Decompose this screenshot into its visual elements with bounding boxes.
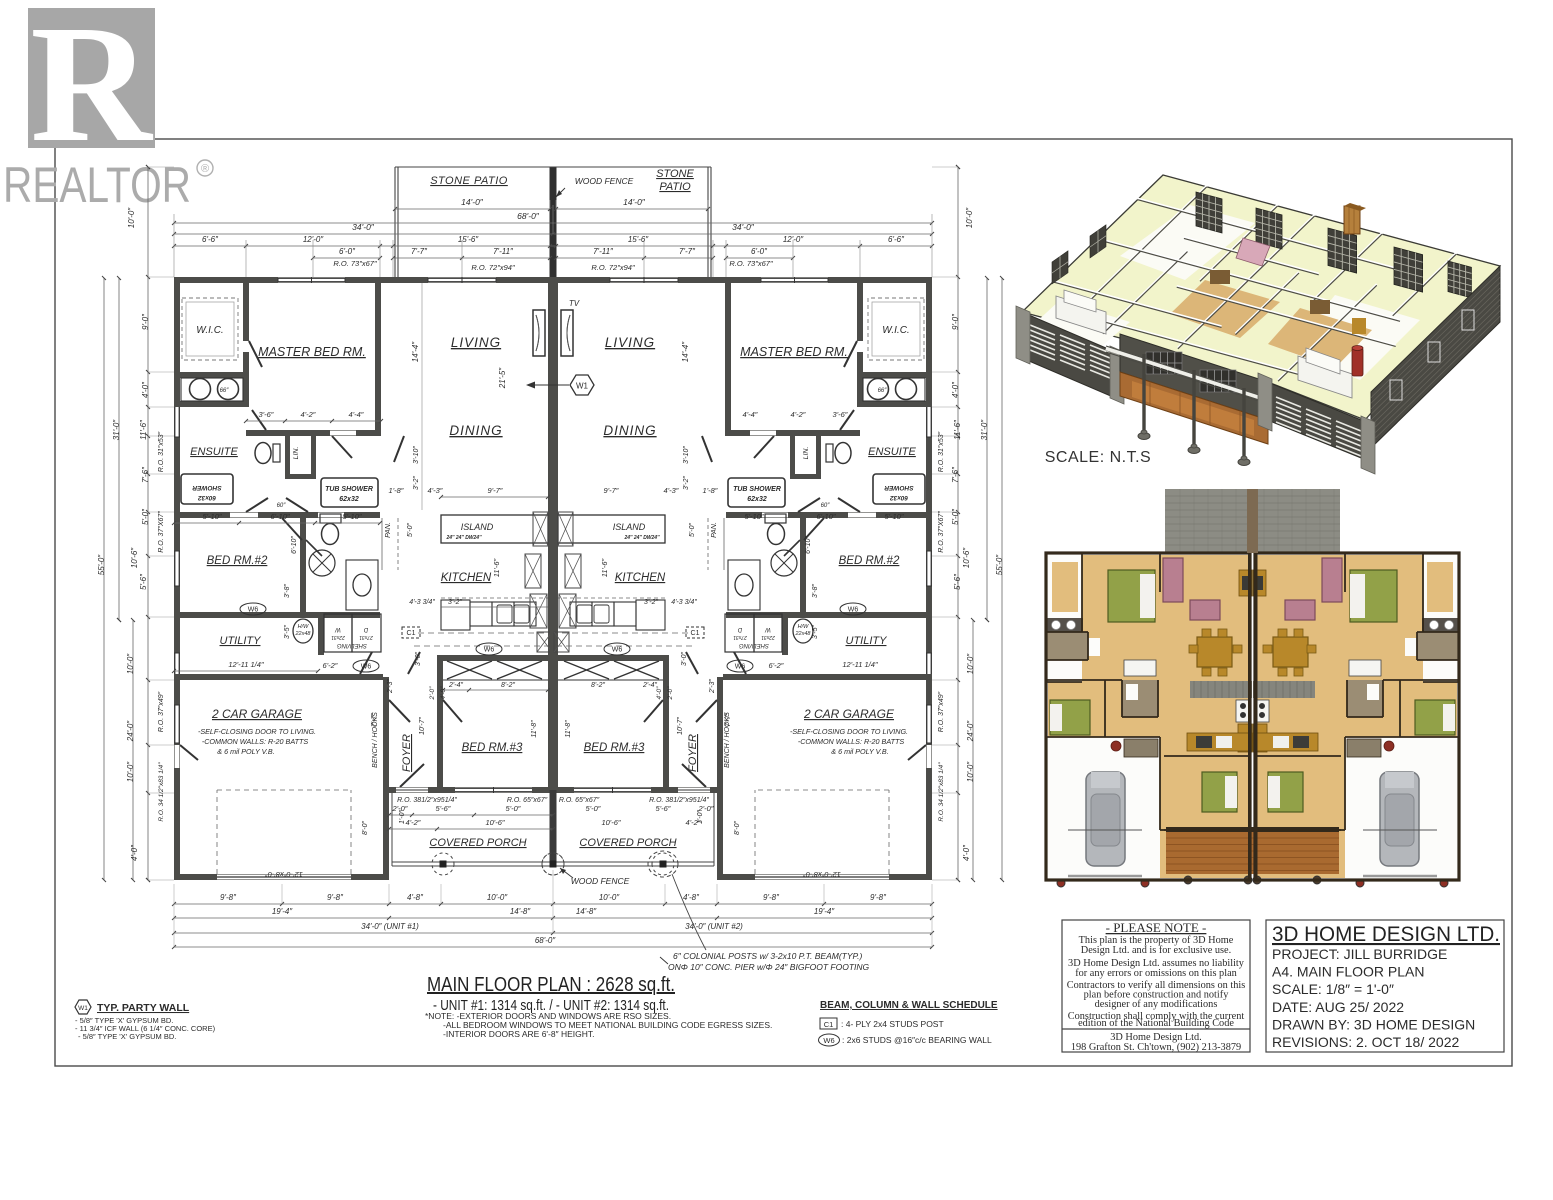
svg-text:4'-4″: 4'-4″: [743, 410, 758, 419]
svg-text:6'-6″: 6'-6″: [888, 235, 905, 244]
svg-text:6″ COLONIAL POSTS w/ 3-2x10 P.: 6″ COLONIAL POSTS w/ 3-2x10 P.T. BEAM(TY…: [673, 951, 862, 961]
svg-text:3'-6″: 3'-6″: [259, 410, 274, 419]
svg-text:4'-0″: 4'-0″: [951, 381, 960, 398]
svg-text:11'-8″: 11'-8″: [531, 720, 538, 738]
svg-text:MASTER BED RM.: MASTER BED RM.: [258, 345, 366, 359]
svg-text:5'-10″: 5'-10″: [202, 512, 221, 521]
svg-text:R.O. 37″X67″: R.O. 37″X67″: [938, 511, 945, 553]
svg-text:COVERED PORCH: COVERED PORCH: [429, 837, 526, 849]
svg-text:: 2x6 STUDS @16″c/c BEARING WA: : 2x6 STUDS @16″c/c BEARING WALL: [842, 1035, 992, 1045]
svg-text:22x31: 22x31: [331, 634, 346, 640]
svg-text:-SELF-CLOSING DOOR TO LIVING.: -SELF-CLOSING DOOR TO LIVING.: [198, 727, 316, 736]
svg-text:®: ®: [201, 163, 209, 175]
svg-text:SHOWER: SHOWER: [192, 484, 222, 491]
svg-text:62x32: 62x32: [339, 496, 359, 503]
svg-text:19'-4″: 19'-4″: [272, 907, 294, 916]
svg-text:ENSUITE: ENSUITE: [190, 446, 238, 458]
svg-text:31'-0″: 31'-0″: [980, 419, 989, 441]
svg-text:KITCHEN: KITCHEN: [441, 572, 492, 584]
svg-text:TV: TV: [569, 299, 580, 308]
svg-text:R.O. 34 1/2″x83 1/4″: R.O. 34 1/2″x83 1/4″: [938, 762, 945, 822]
svg-text:7'-11″: 7'-11″: [593, 247, 614, 256]
svg-text:D: D: [737, 626, 742, 632]
svg-text:STONE PATIO: STONE PATIO: [430, 175, 508, 187]
svg-text:4'-8″: 4'-8″: [683, 893, 700, 902]
svg-text:66″: 66″: [220, 388, 230, 394]
svg-text:19'-4″: 19'-4″: [814, 907, 836, 916]
svg-text:14'-4″: 14'-4″: [411, 341, 420, 363]
svg-text:4'-0″: 4'-0″: [962, 844, 971, 861]
svg-text:BED RM.#3: BED RM.#3: [584, 742, 645, 754]
svg-text:W6: W6: [735, 664, 746, 671]
svg-text:10'-0″: 10'-0″: [126, 653, 135, 675]
svg-text:8'-0″: 8'-0″: [734, 821, 741, 835]
svg-text:9'-8″: 9'-8″: [327, 893, 344, 902]
svg-text:24'-0″: 24'-0″: [126, 720, 135, 743]
svg-text:3'-2″: 3'-2″: [683, 476, 690, 490]
svg-text:10'-7″: 10'-7″: [419, 717, 426, 735]
svg-text:34'-0″: 34'-0″: [732, 222, 755, 232]
svg-text:5'-6″: 5'-6″: [436, 804, 451, 813]
svg-text:C1: C1: [824, 1020, 834, 1029]
svg-text:4'-3 3/4″: 4'-3 3/4″: [671, 599, 697, 606]
svg-text:R.O. 37″x49″: R.O. 37″x49″: [938, 691, 945, 732]
svg-text:D: D: [363, 626, 368, 632]
svg-text:10'-0″: 10'-0″: [966, 761, 975, 783]
svg-text:W6: W6: [612, 647, 623, 654]
svg-text:9'-8″: 9'-8″: [870, 893, 887, 902]
svg-text:1'-0″: 1'-0″: [399, 810, 406, 824]
svg-text:ENSUITE: ENSUITE: [868, 446, 916, 458]
svg-text:- 5/8″ TYPE 'X' GYPSUM BD.: - 5/8″ TYPE 'X' GYPSUM BD.: [78, 1032, 176, 1041]
svg-text:10'-0″: 10'-0″: [599, 893, 621, 902]
svg-text:9'-8″: 9'-8″: [220, 893, 237, 902]
svg-text:SHELVING: SHELVING: [337, 642, 367, 648]
svg-text:R.O. 381/2″x951/4″: R.O. 381/2″x951/4″: [649, 797, 709, 804]
svg-text:STONE: STONE: [656, 168, 694, 180]
svg-text:PAN.: PAN.: [385, 522, 392, 538]
svg-text:1'-0″: 1'-0″: [697, 810, 704, 824]
svg-text:9'-0″: 9'-0″: [951, 313, 960, 330]
svg-text:24″ 24″ DW24″: 24″ 24″ DW24″: [446, 535, 483, 541]
svg-text:PAN.: PAN.: [711, 522, 718, 538]
svg-text:3'-0″: 3'-0″: [415, 652, 422, 666]
svg-text:11'-6″: 11'-6″: [492, 558, 501, 577]
svg-text:12'-0″: 12'-0″: [783, 235, 805, 244]
svg-text:10'-0″: 10'-0″: [487, 893, 509, 902]
svg-text:REVISIONS: 2. OCT 18/ 2022: REVISIONS: 2. OCT 18/ 2022: [1272, 1034, 1459, 1050]
svg-text:3'-2″: 3'-2″: [413, 476, 420, 490]
svg-text:W6: W6: [848, 607, 859, 614]
svg-text:ISLAND: ISLAND: [613, 522, 646, 532]
svg-text:6'-10″: 6'-10″: [270, 512, 289, 521]
svg-text:W.I.C.: W.I.C.: [196, 325, 223, 336]
svg-text:4'-3 3/4″: 4'-3 3/4″: [409, 599, 435, 606]
svg-text:A4. MAIN FLOOR PLAN: A4. MAIN FLOOR PLAN: [1272, 964, 1424, 980]
svg-text:15'-6″: 15'-6″: [628, 235, 650, 244]
svg-text:BEAM, COLUMN & WALL SCHEDULE: BEAM, COLUMN & WALL SCHEDULE: [820, 1000, 998, 1011]
svg-text:W: W: [334, 626, 341, 632]
svg-text:12'-0″: 12'-0″: [303, 235, 325, 244]
svg-text:3'-2″: 3'-2″: [448, 599, 462, 606]
svg-text:ONΦ 10″ CONC. PIER w/Φ 24″ BIG: ONΦ 10″ CONC. PIER w/Φ 24″ BIGFOOT FOOTI…: [668, 962, 870, 972]
svg-text:5'-6″: 5'-6″: [656, 804, 671, 813]
svg-text:R.O. 73″x67″: R.O. 73″x67″: [333, 259, 377, 268]
svg-text:COVERED PORCH: COVERED PORCH: [579, 837, 676, 849]
svg-text:C1: C1: [691, 630, 700, 637]
svg-text:UTILITY: UTILITY: [220, 635, 262, 647]
svg-text:2'-0″: 2'-0″: [429, 686, 436, 701]
svg-text:LIN.: LIN.: [293, 447, 300, 460]
svg-text:TUB SHOWER: TUB SHOWER: [325, 486, 373, 493]
svg-text:6'-2″: 6'-2″: [769, 661, 784, 670]
svg-text:10'-0″: 10'-0″: [965, 207, 974, 229]
svg-text:3'-10″: 3'-10″: [683, 446, 690, 464]
svg-text:27x31: 27x31: [733, 634, 748, 640]
svg-text:10'-0″: 10'-0″: [126, 761, 135, 783]
svg-text:DINING: DINING: [603, 423, 656, 438]
svg-text:68'-0″: 68'-0″: [517, 211, 540, 221]
svg-text:KITCHEN: KITCHEN: [615, 572, 666, 584]
svg-text:MAIN FLOOR PLAN : 2628 sq.ft.: MAIN FLOOR PLAN : 2628 sq.ft.: [427, 974, 675, 996]
svg-text:2'-0″: 2'-0″: [667, 686, 674, 701]
svg-text:SHOWER: SHOWER: [884, 484, 914, 491]
svg-text:1'-8″: 1'-8″: [703, 486, 718, 495]
svg-text:4'-2″: 4'-2″: [301, 410, 316, 419]
svg-text:3D HOME DESIGN LTD.: 3D HOME DESIGN LTD.: [1272, 923, 1500, 946]
svg-text:R.O. 37″X67″: R.O. 37″X67″: [158, 511, 165, 553]
svg-text:TYP. PARTY WALL: TYP. PARTY WALL: [97, 1002, 190, 1014]
svg-text:55'-0″: 55'-0″: [995, 554, 1004, 576]
svg-text:27x31: 27x31: [359, 634, 374, 640]
svg-text:W1: W1: [78, 1005, 88, 1012]
svg-text:H/W: H/W: [798, 624, 810, 630]
svg-text:UTILITY: UTILITY: [846, 635, 888, 647]
svg-text:3'-8″: 3'-8″: [284, 584, 291, 598]
svg-text:-SELF-CLOSING DOOR TO LIVING.: -SELF-CLOSING DOOR TO LIVING.: [790, 727, 908, 736]
svg-text:12'-11 1/4″: 12'-11 1/4″: [228, 660, 264, 669]
svg-text:9'-0″: 9'-0″: [141, 313, 150, 330]
svg-text:- PLEASE NOTE -: - PLEASE NOTE -: [1106, 920, 1207, 935]
svg-text:R.O. 72″x94″: R.O. 72″x94″: [471, 263, 515, 272]
svg-text:10'-7″: 10'-7″: [677, 717, 684, 735]
svg-text:60x32: 60x32: [198, 494, 216, 501]
svg-text:H/W: H/W: [298, 624, 310, 630]
svg-text:& 6 mil POLY V.B.: & 6 mil POLY V.B.: [831, 747, 888, 756]
svg-text:ISLAND: ISLAND: [461, 522, 494, 532]
svg-text:5'-10″: 5'-10″: [884, 512, 903, 521]
svg-text:5'-0″: 5'-0″: [689, 523, 696, 537]
svg-text:W: W: [764, 626, 771, 632]
svg-text:Design Ltd. and is for exclusi: Design Ltd. and is for exclusive use.: [1081, 945, 1231, 956]
svg-text:24'-0″: 24'-0″: [966, 720, 975, 743]
svg-text:9'-7″: 9'-7″: [488, 486, 503, 495]
svg-text:10'-0″: 10'-0″: [127, 207, 136, 229]
svg-text:9'-7″: 9'-7″: [604, 486, 619, 495]
svg-text:2'-3″: 2'-3″: [709, 679, 716, 694]
svg-text:60″: 60″: [277, 503, 287, 509]
svg-text:4'-2″: 4'-2″: [791, 410, 806, 419]
svg-text:12'-0″x8'-0″: 12'-0″x8'-0″: [803, 870, 841, 879]
svg-text:R.O. 31″x53″: R.O. 31″x53″: [938, 431, 945, 472]
svg-text:R.O. 381/2″x951/4″: R.O. 381/2″x951/4″: [397, 797, 457, 804]
svg-text:-COMMON WALLS: R-20 BATTS: -COMMON WALLS: R-20 BATTS: [202, 737, 309, 746]
svg-text:R.O. 37″x49″: R.O. 37″x49″: [158, 691, 165, 732]
svg-text:4'-3″: 4'-3″: [664, 486, 679, 495]
svg-text:3'-10″: 3'-10″: [413, 446, 420, 464]
svg-text:5'-10″: 5'-10″: [342, 512, 361, 521]
svg-text:REALTOR: REALTOR: [3, 157, 191, 213]
svg-text:24″ 24″ DW24″: 24″ 24″ DW24″: [624, 535, 661, 541]
svg-text:R: R: [30, 0, 153, 177]
svg-text:3'-0″: 3'-0″: [681, 652, 688, 666]
svg-text:10'-0″: 10'-0″: [966, 653, 975, 675]
svg-text:W6: W6: [248, 607, 259, 614]
svg-text:& 6 mil POLY V.B.: & 6 mil POLY V.B.: [217, 747, 274, 756]
svg-text:11'-6″: 11'-6″: [953, 419, 962, 440]
svg-text:34'-0″: 34'-0″: [352, 222, 375, 232]
svg-text:R.O. 65″x67″: R.O. 65″x67″: [559, 797, 600, 804]
svg-text:7'-6″: 7'-6″: [951, 466, 960, 483]
svg-text:7'-11″: 7'-11″: [493, 247, 514, 256]
svg-text:WOOD FENCE: WOOD FENCE: [571, 876, 630, 886]
svg-text:6'-6″: 6'-6″: [202, 235, 219, 244]
svg-text:2 CAR GARAGE: 2 CAR GARAGE: [211, 707, 303, 721]
svg-text:6'-10″: 6'-10″: [291, 536, 298, 554]
svg-text:5'-6″: 5'-6″: [139, 573, 148, 590]
svg-text:12'-11 1/4″: 12'-11 1/4″: [842, 660, 878, 669]
svg-text:LIN.: LIN.: [803, 447, 810, 460]
svg-text:10'-6″: 10'-6″: [130, 547, 139, 569]
svg-text:60x32: 60x32: [890, 494, 908, 501]
svg-text:DATE: AUG 25/ 2022: DATE: AUG 25/ 2022: [1272, 999, 1404, 1015]
svg-text:22x48: 22x48: [795, 631, 812, 637]
svg-text:PATIO: PATIO: [659, 181, 691, 193]
svg-text:11'-6″: 11'-6″: [600, 558, 609, 577]
svg-text:2 CAR GARAGE: 2 CAR GARAGE: [803, 707, 895, 721]
svg-text:6'-0″: 6'-0″: [751, 247, 768, 256]
svg-text:7'-6″: 7'-6″: [141, 466, 150, 483]
svg-text:-COMMON WALLS: R-20 BATTS: -COMMON WALLS: R-20 BATTS: [798, 737, 905, 746]
svg-text:DINING: DINING: [449, 423, 502, 438]
svg-text:4'-0″: 4'-0″: [656, 686, 663, 700]
svg-text:TUB SHOWER: TUB SHOWER: [733, 486, 781, 493]
svg-text:68'-0″: 68'-0″: [535, 936, 557, 945]
svg-text:4'-8″: 4'-8″: [407, 893, 424, 902]
svg-text:10'-6″: 10'-6″: [601, 818, 620, 827]
svg-text:BED RM.#2: BED RM.#2: [207, 555, 268, 567]
svg-text:5'-0″: 5'-0″: [141, 508, 150, 525]
svg-text:3'-5″: 3'-5″: [812, 625, 819, 639]
svg-text:14'-8″: 14'-8″: [510, 907, 532, 916]
svg-text:FOYER: FOYER: [401, 734, 413, 772]
svg-text:BED RM.#2: BED RM.#2: [839, 555, 900, 567]
svg-text:3'-6″: 3'-6″: [833, 410, 848, 419]
svg-text:7'-7″: 7'-7″: [371, 713, 378, 727]
svg-text:designer of any modifications: designer of any modifications: [1095, 999, 1218, 1010]
svg-text:4'-4″: 4'-4″: [349, 410, 364, 419]
svg-text:55'-0″: 55'-0″: [97, 554, 106, 576]
svg-text:W.I.C.: W.I.C.: [882, 325, 909, 336]
svg-text:22x48: 22x48: [295, 631, 312, 637]
svg-text:: 4- PLY 2x4 STUDS POST: : 4- PLY 2x4 STUDS POST: [841, 1019, 944, 1029]
svg-text:4'-0″: 4'-0″: [130, 844, 139, 861]
svg-text:6'-2″: 6'-2″: [323, 661, 338, 670]
svg-text:1'-8″: 1'-8″: [389, 486, 404, 495]
svg-text:12'-0″x8'-0″: 12'-0″x8'-0″: [265, 870, 303, 879]
svg-text:14'-0″: 14'-0″: [623, 197, 646, 207]
svg-text:FOYER: FOYER: [687, 734, 699, 772]
svg-text:4'-0″: 4'-0″: [440, 686, 447, 700]
svg-text:8'-0″: 8'-0″: [362, 821, 369, 835]
svg-text:2'-4″: 2'-4″: [448, 682, 463, 689]
svg-text:SHELVING: SHELVING: [739, 642, 769, 648]
svg-text:SCALE: N.T.S: SCALE: N.T.S: [1045, 449, 1151, 466]
svg-text:edition of the National Buildi: edition of the National Building Code: [1078, 1018, 1234, 1029]
svg-text:PROJECT: JILL BURRIDGE: PROJECT: JILL BURRIDGE: [1272, 946, 1447, 962]
svg-text:15'-6″: 15'-6″: [458, 235, 480, 244]
svg-text:for any errors or omissions on: for any errors or omissions on this plan: [1075, 968, 1237, 979]
svg-text:5'-6″: 5'-6″: [953, 573, 962, 590]
svg-text:198 Grafton St. Ch'town, (902): 198 Grafton St. Ch'town, (902) 213-3879: [1071, 1042, 1241, 1053]
svg-text:R.O. 31″x53″: R.O. 31″x53″: [158, 431, 165, 472]
svg-text:14'-8″: 14'-8″: [576, 907, 598, 916]
svg-text:R.O. 73″x67″: R.O. 73″x67″: [729, 259, 773, 268]
svg-text:C1: C1: [407, 630, 416, 637]
svg-text:22x31: 22x31: [761, 634, 776, 640]
svg-text:LIVING: LIVING: [451, 335, 501, 350]
svg-text:W6: W6: [823, 1036, 834, 1045]
svg-text:R.O. 34 1/2″x83 1/4″: R.O. 34 1/2″x83 1/4″: [158, 762, 165, 822]
svg-text:6'-0″: 6'-0″: [339, 247, 356, 256]
svg-text:4'-2″: 4'-2″: [406, 818, 421, 827]
svg-text:7'-7″: 7'-7″: [725, 713, 732, 727]
svg-text:10'-6″: 10'-6″: [962, 547, 971, 569]
svg-text:-INTERIOR DOORS ARE 6'-8″ HEIG: -INTERIOR DOORS ARE 6'-8″ HEIGHT.: [443, 1029, 595, 1039]
svg-text:11'-8″: 11'-8″: [565, 720, 572, 738]
svg-text:SCALE: 1/8″ = 1'-0″: SCALE: 1/8″ = 1'-0″: [1272, 981, 1394, 997]
svg-text:5'-0″: 5'-0″: [506, 804, 521, 813]
svg-text:5'-0″: 5'-0″: [951, 508, 960, 525]
svg-text:7'-7″: 7'-7″: [411, 247, 428, 256]
svg-text:8'-2″: 8'-2″: [591, 682, 605, 689]
svg-text:7'-7″: 7'-7″: [679, 247, 696, 256]
svg-text:3'-8″: 3'-8″: [812, 584, 819, 598]
svg-text:W6: W6: [484, 647, 495, 654]
svg-text:34'-0″ (UNIT #1): 34'-0″ (UNIT #1): [361, 922, 419, 931]
svg-text:5'-10″: 5'-10″: [744, 512, 763, 521]
svg-text:LIVING: LIVING: [605, 335, 655, 350]
svg-text:21'-5″: 21'-5″: [498, 367, 507, 390]
svg-text:4'-3″: 4'-3″: [428, 486, 443, 495]
svg-text:66″: 66″: [878, 388, 888, 394]
svg-text:R.O. 72″x94″: R.O. 72″x94″: [591, 263, 635, 272]
svg-text:3'-2″: 3'-2″: [644, 599, 658, 606]
svg-text:62x32: 62x32: [747, 496, 767, 503]
svg-text:BED RM.#3: BED RM.#3: [462, 742, 523, 754]
svg-text:WOOD FENCE: WOOD FENCE: [575, 176, 634, 186]
svg-text:6'-10″: 6'-10″: [805, 536, 812, 554]
svg-text:MASTER BED RM.: MASTER BED RM.: [740, 345, 848, 359]
svg-text:31'-0″: 31'-0″: [112, 419, 121, 441]
svg-text:14'-0″: 14'-0″: [461, 197, 484, 207]
svg-text:9'-8″: 9'-8″: [763, 893, 780, 902]
svg-text:11'-6″: 11'-6″: [139, 419, 148, 440]
svg-text:4'-0″: 4'-0″: [141, 381, 150, 398]
svg-text:2'-3″: 2'-3″: [387, 679, 394, 694]
svg-text:R.O. 65″x67″: R.O. 65″x67″: [507, 797, 548, 804]
svg-text:DRAWN BY: 3D HOME DESIGN: DRAWN BY: 3D HOME DESIGN: [1272, 1016, 1475, 1032]
svg-text:14'-4″: 14'-4″: [681, 341, 690, 363]
svg-text:6'-10″: 6'-10″: [816, 512, 835, 521]
svg-text:W1: W1: [576, 382, 589, 391]
svg-text:5'-0″: 5'-0″: [586, 804, 601, 813]
svg-text:3'-5″: 3'-5″: [284, 625, 291, 639]
svg-text:8'-2″: 8'-2″: [501, 682, 515, 689]
svg-text:5'-0″: 5'-0″: [407, 523, 414, 537]
svg-text:10'-6″: 10'-6″: [485, 818, 504, 827]
svg-text:60″: 60″: [821, 503, 831, 509]
svg-text:W6: W6: [361, 664, 372, 671]
